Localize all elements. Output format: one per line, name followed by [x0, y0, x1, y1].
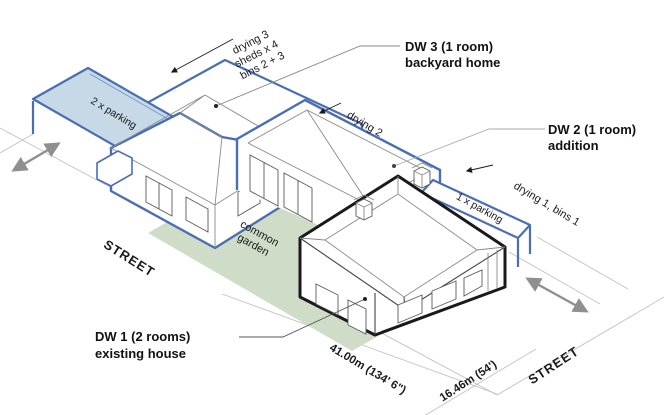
- right-street-kerb: [497, 297, 664, 395]
- street-left-label: STREET: [101, 237, 158, 280]
- left-street-access-arrow: [14, 144, 58, 170]
- dw3-label: DW 3 (1 room) backyard home: [405, 39, 500, 70]
- dw1-label: DW 1 (2 rooms) existing house: [95, 329, 190, 361]
- backyard-annotation-leader: [172, 39, 233, 72]
- site-plan: drying 3 sheds x 4 bins 2 + 3 2 x parkin…: [0, 0, 664, 415]
- dw2-label-line1: DW 2 (1 room): [548, 122, 636, 137]
- right-street-access-arrow: [528, 279, 586, 311]
- site-plan-svg: drying 3 sheds x 4 bins 2 + 3 2 x parkin…: [0, 0, 664, 415]
- dw1-chimney-2: [412, 163, 432, 188]
- dimension-length-label: 41.00m (134' 6"): [327, 342, 408, 397]
- dw1-label-line2: existing house: [95, 346, 186, 361]
- dw2-leader-dot: [392, 164, 396, 168]
- backyard-annotation: drying 3 sheds x 4 bins 2 + 3: [227, 26, 287, 82]
- dw1-chimney-1: [354, 195, 374, 220]
- dw3-label-line1: DW 3 (1 room): [405, 39, 493, 54]
- dw3-leader-dot: [214, 104, 218, 108]
- drying1-leader: [467, 165, 493, 171]
- dw3-label-line2: backyard home: [405, 55, 500, 70]
- dw2-label: DW 2 (1 room) addition: [548, 122, 636, 153]
- dw1-label-line1: DW 1 (2 rooms): [95, 329, 190, 344]
- right-driveway-edge-2: [537, 237, 628, 289]
- drying2-leader: [320, 103, 341, 113]
- right-driveway-edge-1: [509, 252, 600, 304]
- dw1-leader-dot: [363, 297, 367, 301]
- dimension-width-label: 16.46m (54'): [438, 359, 500, 405]
- dw2-label-line2: addition: [548, 138, 599, 153]
